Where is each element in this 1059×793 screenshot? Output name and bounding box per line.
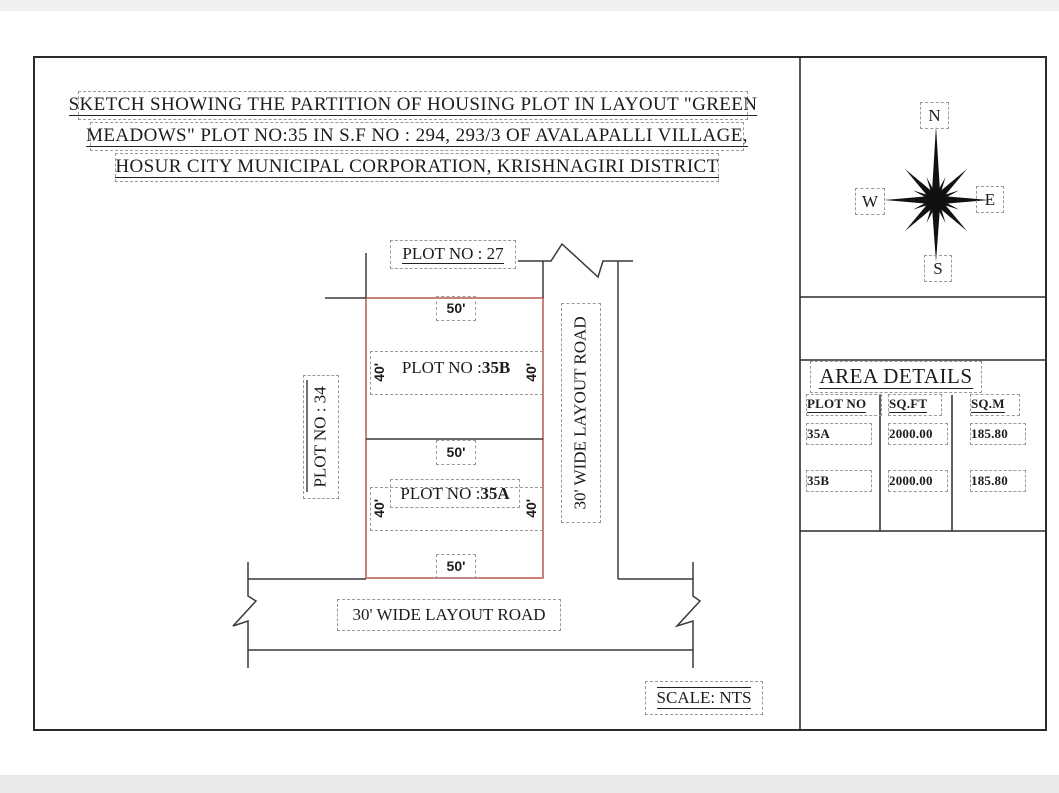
row-35a-sqft: 2000.00 (889, 427, 933, 441)
dim-40ft-35b-east-text: 40' (524, 363, 539, 382)
plot35b-id-text: 35B (482, 359, 510, 377)
plot35b-label: PLOT NO : 35B (392, 354, 520, 381)
plot35b-prefix-text: PLOT NO : (402, 359, 482, 377)
row-35a-plot-no: 35A (807, 427, 830, 441)
compass-north-label: N (920, 102, 949, 129)
title-line-2: MEADOWS" PLOT NO:35 IN S.F NO : 294, 293… (90, 122, 744, 151)
plot34-label: PLOT NO : 34 (303, 375, 339, 499)
title-line-2-text: MEADOWS" PLOT NO:35 IN S.F NO : 294, 293… (86, 126, 748, 148)
dim-40ft-35b-east: 40' (518, 349, 544, 395)
compass-west-label: W (855, 188, 885, 215)
plot34-text: PLOT NO : 34 (312, 386, 330, 487)
plot27-text: PLOT NO : 27 (402, 245, 503, 265)
table-row: 2000.00 (888, 470, 948, 492)
title-line-1-text: SKETCH SHOWING THE PARTITION OF HOUSING … (69, 95, 758, 117)
table-header-sqft-text: SQ.FT (889, 397, 927, 413)
compass-west-text: W (862, 193, 878, 211)
table-header-sqm-text: SQ.M (971, 397, 1005, 413)
dim-40ft-35b-west-text: 40' (372, 363, 387, 382)
table-row: 35B (806, 470, 872, 492)
road-vertical-label: 30' WIDE LAYOUT ROAD (561, 303, 601, 523)
compass-east-text: E (985, 191, 995, 209)
dim-50ft-bottom-text: 50' (447, 559, 466, 574)
dim-40ft-35a-west-text: 40' (372, 499, 387, 518)
row-35b-sqm: 185.80 (971, 474, 1008, 488)
dim-50ft-middle-text: 50' (447, 445, 466, 460)
scale-text: SCALE: NTS (657, 687, 752, 709)
row-35b-sqft: 2000.00 (889, 474, 933, 488)
area-details-title-text: AREA DETAILS (819, 365, 972, 389)
road-bottom-text: 30' WIDE LAYOUT ROAD (352, 606, 545, 624)
table-header-sqm: SQ.M (970, 394, 1020, 416)
road-bottom-label: 30' WIDE LAYOUT ROAD (337, 599, 561, 631)
bottom-road-right-break (677, 562, 700, 668)
north-road-line-break (518, 244, 633, 277)
table-row: 185.80 (970, 423, 1026, 445)
dim-50ft-bottom: 50' (436, 554, 476, 579)
compass-rose-icon (884, 126, 989, 262)
dim-40ft-35b-west: 40' (366, 349, 392, 395)
row-35a-sqm: 185.80 (971, 427, 1008, 441)
area-details-title: AREA DETAILS (810, 361, 982, 393)
table-header-sqft: SQ.FT (888, 394, 942, 416)
title-line-1: SKETCH SHOWING THE PARTITION OF HOUSING … (78, 91, 748, 120)
road-vertical-text: 30' WIDE LAYOUT ROAD (572, 316, 590, 509)
scale-label: SCALE: NTS (645, 681, 763, 715)
plot27-label: PLOT NO : 27 (390, 240, 516, 269)
dim-40ft-35a-east: 40' (518, 485, 544, 531)
plot-35-boundary (366, 298, 543, 578)
compass-north-text: N (928, 107, 940, 125)
drawing-sheet: SKETCH SHOWING THE PARTITION OF HOUSING … (0, 0, 1059, 793)
table-row: 2000.00 (888, 423, 948, 445)
dim-50ft-top: 50' (436, 296, 476, 321)
dim-50ft-middle: 50' (436, 440, 476, 465)
compass-south-text: S (933, 260, 942, 278)
row-35b-plot-no: 35B (807, 474, 829, 488)
title-line-3: HOSUR CITY MUNICIPAL CORPORATION, KRISHN… (115, 153, 719, 182)
compass-east-label: E (976, 186, 1004, 213)
bottom-road-left-break (233, 562, 256, 668)
table-header-plot-no: PLOT NO (806, 394, 882, 416)
table-row: 35A (806, 423, 872, 445)
table-header-plot-no-text: PLOT NO (807, 397, 866, 413)
title-line-3-text: HOSUR CITY MUNICIPAL CORPORATION, KRISHN… (115, 157, 718, 179)
dim-40ft-35a-east-text: 40' (524, 499, 539, 518)
table-row: 185.80 (970, 470, 1026, 492)
dim-50ft-top-text: 50' (447, 301, 466, 316)
dim-40ft-35a-west: 40' (366, 485, 392, 531)
compass-south-label: S (924, 255, 952, 282)
